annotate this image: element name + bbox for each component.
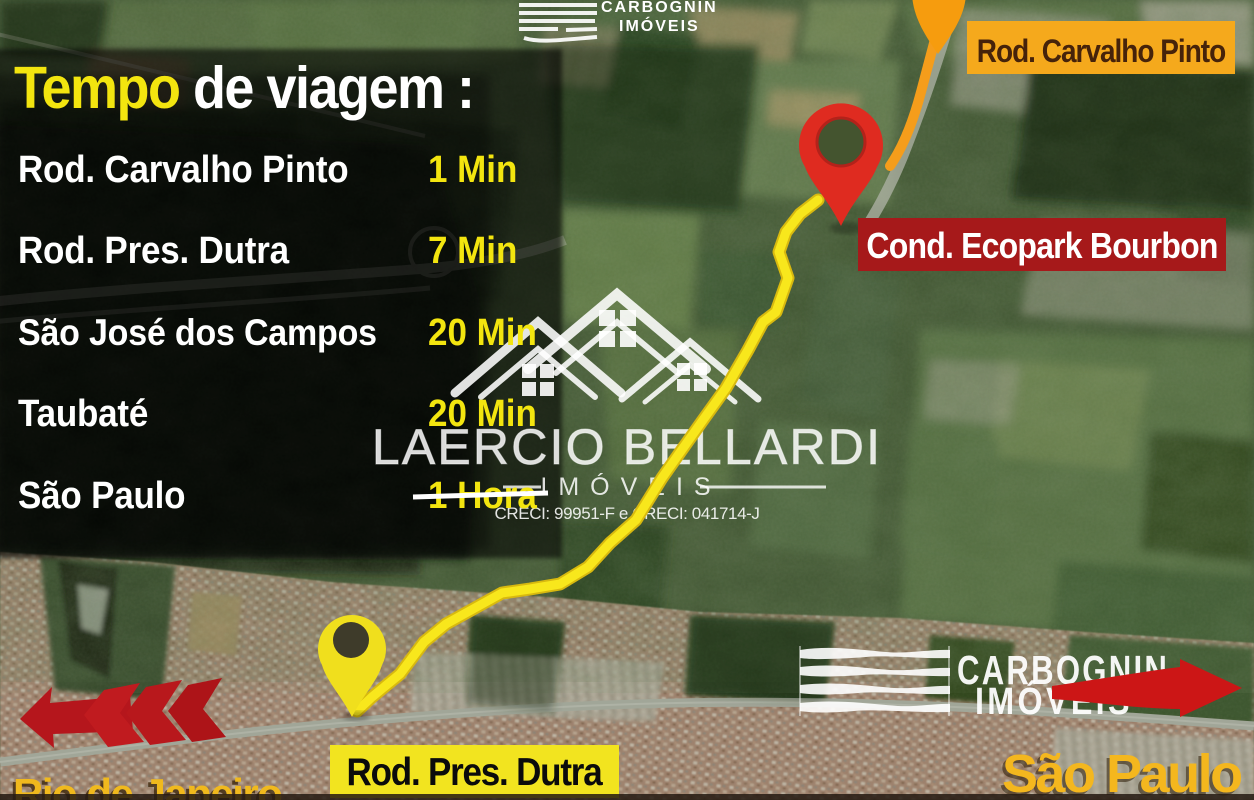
svg-text:CARBOGNIN: CARBOGNIN xyxy=(601,0,718,16)
svg-text:Rod. Pres. Dutra: Rod. Pres. Dutra xyxy=(18,229,290,272)
svg-text:20 Min: 20 Min xyxy=(428,392,537,435)
svg-text:Taubaté: Taubaté xyxy=(18,392,148,435)
svg-text:IMÓVEIS: IMÓVEIS xyxy=(619,16,700,35)
svg-text:20 Min: 20 Min xyxy=(428,311,537,354)
svg-text:1 Min: 1 Min xyxy=(428,148,517,191)
svg-text:São José dos Campos: São José dos Campos xyxy=(18,313,377,353)
svg-text:Rod. Pres. Dutra: Rod. Pres. Dutra xyxy=(347,750,604,793)
svg-text:Rod. Carvalho Pinto: Rod. Carvalho Pinto xyxy=(977,34,1226,69)
svg-text:São Paulo: São Paulo xyxy=(1002,744,1241,800)
svg-text:Cond. Ecopark Bourbon: Cond. Ecopark Bourbon xyxy=(866,226,1217,266)
svg-text:São Paulo: São Paulo xyxy=(18,474,185,517)
svg-text:Tempo de viagem :: Tempo de viagem : xyxy=(14,56,473,122)
svg-text:Rod. Carvalho Pinto: Rod. Carvalho Pinto xyxy=(18,148,348,191)
svg-text:7 Min: 7 Min xyxy=(428,229,517,272)
svg-text:IMÓVEIS: IMÓVEIS xyxy=(540,472,721,501)
